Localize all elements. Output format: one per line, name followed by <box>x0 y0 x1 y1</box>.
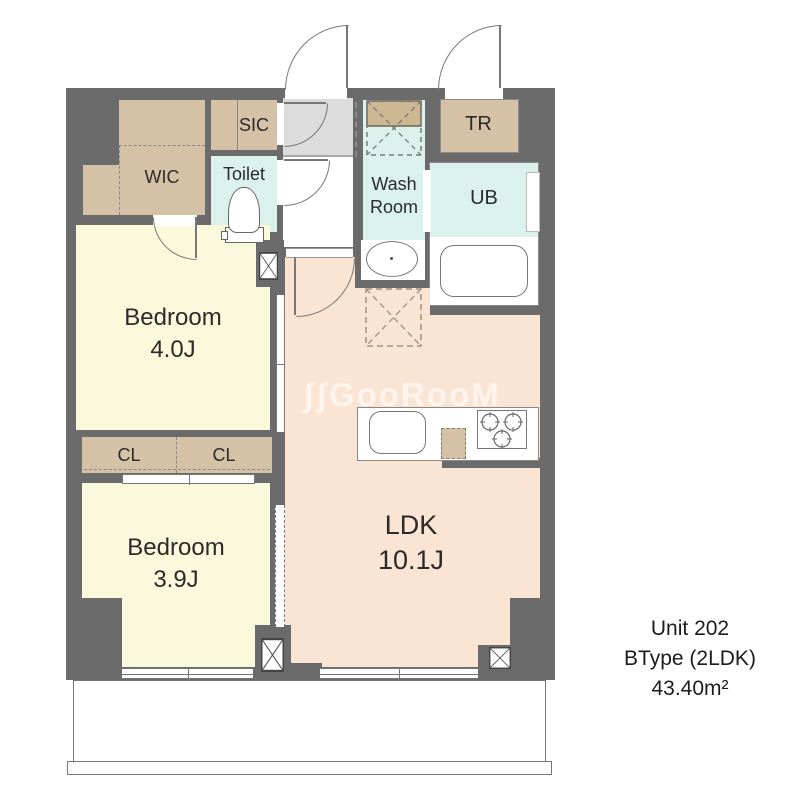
room-ldk-left <box>285 257 355 667</box>
wall-corner-bottom-left <box>66 598 122 680</box>
room-wic-notch <box>83 165 119 215</box>
label-washroom-line2: Room <box>360 196 428 219</box>
pipe-shaft-hall <box>259 252 278 280</box>
bathtub <box>440 245 528 297</box>
label-tr: TR <box>440 112 517 137</box>
room-wic <box>119 100 205 215</box>
label-cl1: CL <box>82 444 176 467</box>
closet-depth-line <box>84 469 270 470</box>
label-cl2: CL <box>176 444 272 467</box>
entrance-door-swing <box>285 25 349 90</box>
label-bedroom1: Bedroom 4.0J <box>76 302 270 366</box>
label-ub: UB <box>430 186 538 211</box>
label-bedroom1-name: Bedroom <box>76 302 270 334</box>
closet-sliding-door <box>122 474 255 484</box>
watermark: ʃʃGooRooM <box>303 376 501 414</box>
label-washroom-line1: Wash <box>360 173 428 196</box>
pipe-shaft-bottom <box>261 638 284 672</box>
kitchen-sink <box>369 411 426 454</box>
unit-area: 43.40m² <box>595 674 785 704</box>
balcony <box>73 680 546 763</box>
window-bedroom2 <box>122 668 253 679</box>
label-washroom: Wash Room <box>360 173 428 218</box>
partition-bedroom1-ldk <box>276 295 285 432</box>
washroom-folding-door <box>355 102 357 157</box>
tr-door-swing <box>438 25 502 90</box>
wall-foot-bottom <box>284 663 322 680</box>
label-wic: WIC <box>119 166 205 189</box>
label-bedroom2-name: Bedroom <box>82 532 270 564</box>
pipe-shaft-right <box>489 647 511 669</box>
wic-depth-line <box>119 145 205 146</box>
label-ldk-name: LDK <box>300 508 522 543</box>
floor-plan: ʃʃGooRooM WIC SIC Toilet Wash Room TR UB… <box>0 0 800 800</box>
toilet-handle <box>221 231 228 240</box>
window-ldk <box>320 668 478 679</box>
unit-type: BType (2LDK) <box>595 644 785 674</box>
ldk-door-threshold <box>286 248 353 258</box>
washroom-sink-drain <box>390 257 393 260</box>
label-bedroom1-size: 4.0J <box>76 334 270 366</box>
toilet-bowl <box>228 187 260 233</box>
unit-info: Unit 202 BType (2LDK) 43.40m² <box>595 614 785 704</box>
label-bedroom2-size: 3.9J <box>82 564 270 596</box>
washing-machine-space <box>366 100 422 156</box>
refrigerator-space <box>365 288 422 347</box>
partition-bedroom2-ldk <box>275 505 285 627</box>
label-bedroom2: Bedroom 3.9J <box>82 532 270 596</box>
balcony-railing <box>67 761 552 775</box>
label-sic: SIC <box>228 114 280 137</box>
unit-number: Unit 202 <box>595 614 785 644</box>
label-ldk: LDK 10.1J <box>300 508 522 578</box>
label-ldk-size: 10.1J <box>300 543 522 578</box>
stove <box>477 410 527 449</box>
kitchen-storage-space <box>441 428 466 459</box>
label-toilet: Toilet <box>211 163 277 186</box>
opening-toilet <box>277 160 284 205</box>
